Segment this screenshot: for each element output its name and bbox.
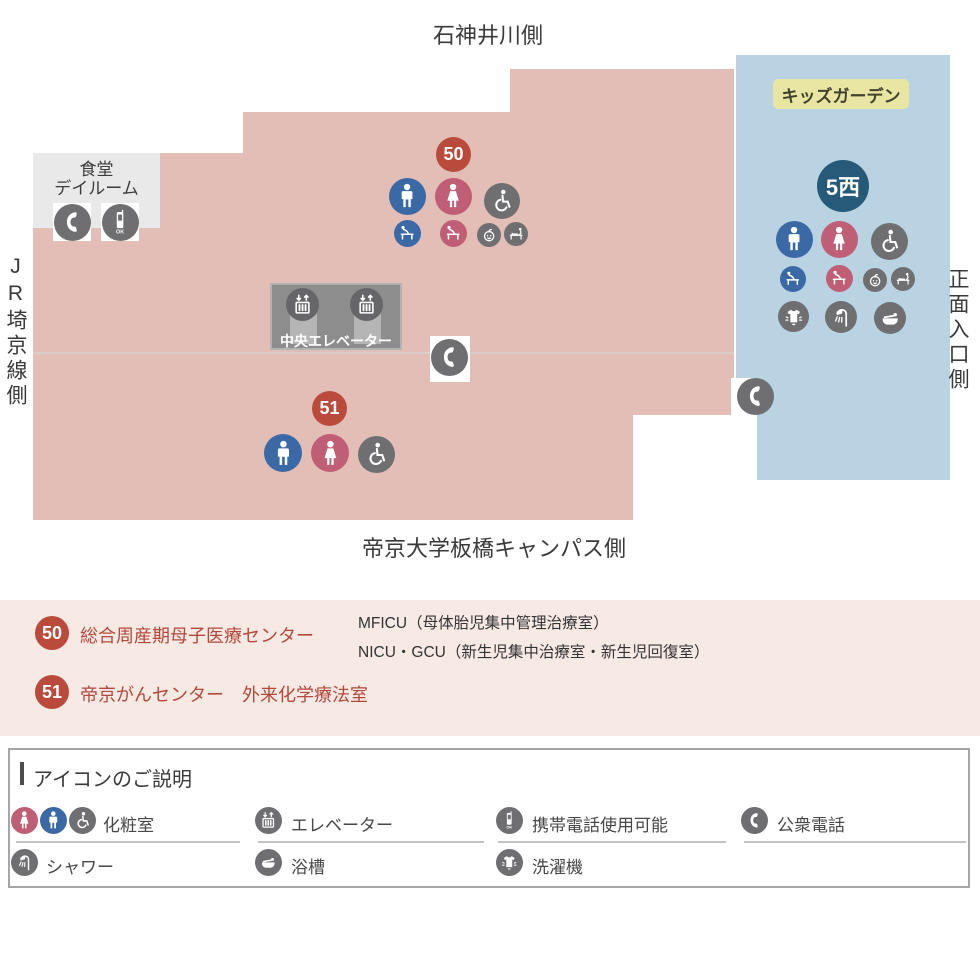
area-51-badge: 51: [312, 391, 347, 426]
mobile-phone-icon: [496, 807, 523, 834]
bathtub-icon: [874, 302, 906, 334]
ward-5-west-badge: 5西: [817, 160, 869, 212]
bathtub-icon: [255, 849, 282, 876]
male-restroom-icon: [40, 807, 67, 834]
female-restroom-icon: [435, 178, 472, 215]
changing-board-icon: [440, 220, 467, 247]
central-elevator-label: 中央エレベーター: [270, 331, 402, 351]
public-phone-icon: [431, 339, 468, 376]
guide-separator: [498, 841, 726, 843]
guide-label-shower: シャワー: [46, 853, 114, 878]
female-restroom-icon: [311, 434, 349, 472]
elevator-icon: [286, 288, 319, 321]
dining-label-line1: 食堂: [33, 160, 160, 179]
kids-garden-label: キッズガーデン: [773, 79, 909, 109]
male-restroom-icon: [264, 434, 302, 472]
guide-label-mobile-phone: 携帯電話使用可能: [532, 811, 668, 836]
public-phone-icon: [54, 204, 91, 241]
guide-separator: [16, 841, 240, 843]
public-phone-icon: [741, 807, 768, 834]
elevator-icon: [255, 807, 282, 834]
dining-label-line2: デイルーム: [33, 179, 160, 198]
floor-map-page: 石神井川側 JR埼京線側 正面入口側 帝京大学板橋キャンパス側 食堂 デイルーム…: [0, 0, 980, 980]
mobile-phone-icon: [102, 204, 139, 241]
guide-label-bathtub: 浴槽: [291, 853, 325, 878]
area-50-badge: 50: [436, 137, 471, 172]
title-accent-bar: [20, 762, 24, 785]
female-restroom-icon: [821, 221, 858, 258]
orientation-label-south: 帝京大学板橋キャンパス側: [362, 531, 626, 563]
guide-label-washing-machine: 洗濯機: [532, 853, 583, 878]
guide-label-restroom: 化粧室: [103, 811, 154, 836]
icon-guide-title: アイコンのご説明: [33, 763, 192, 792]
legend-area-50-detail-1: MFICU（母体胎児集中管理治療室）: [358, 611, 609, 633]
baby-icon: [477, 223, 501, 247]
baby-icon: [863, 268, 887, 292]
washing-machine-icon: [496, 849, 523, 876]
legend-area-51-name: 帝京がんセンター 外来化学療法室: [80, 681, 368, 707]
washing-machine-icon: [778, 301, 809, 332]
wheelchair-icon: [484, 183, 520, 219]
changing-board-icon: [394, 220, 421, 247]
orientation-label-east: 正面入口側: [947, 268, 968, 393]
legend-area-50-detail-2: NICU・GCU（新生児集中治療室・新生児回復室）: [358, 640, 709, 662]
guide-label-elevator: エレベーター: [291, 811, 393, 836]
diaper-change-icon: [504, 222, 528, 246]
legend-area-50-badge: 50: [35, 616, 69, 650]
wheelchair-icon: [69, 807, 96, 834]
changing-board-icon: [826, 265, 853, 292]
orientation-label-west: JR埼京線側: [5, 255, 26, 409]
shower-icon: [11, 849, 38, 876]
shower-icon: [825, 301, 857, 333]
guide-label-public-phone: 公衆電話: [777, 811, 845, 836]
diaper-change-icon: [891, 267, 915, 291]
legend-area-51-badge: 51: [35, 675, 69, 709]
public-phone-icon: [737, 378, 774, 415]
legend-area-50-name: 総合周産期母子医療センター: [80, 622, 314, 648]
wheelchair-icon: [358, 436, 395, 473]
guide-separator: [258, 841, 484, 843]
female-restroom-icon: [11, 807, 38, 834]
elevator-icon: [350, 288, 383, 321]
male-restroom-icon: [776, 221, 813, 258]
male-restroom-icon: [389, 178, 426, 215]
wheelchair-icon: [871, 223, 908, 260]
guide-separator: [744, 841, 966, 843]
changing-board-icon: [780, 266, 806, 292]
orientation-label-north: 石神井川側: [433, 18, 543, 50]
